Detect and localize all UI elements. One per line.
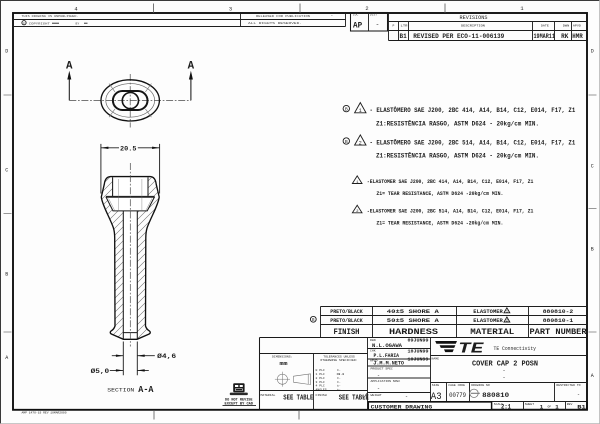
svg-text:COPYRIGHT: COPYRIGHT bbox=[29, 21, 50, 25]
svg-text:- ELASTÔMERO SAE J200, 2BC 514: - ELASTÔMERO SAE J200, 2BC 514, A14, B14… bbox=[370, 139, 576, 146]
svg-text:A: A bbox=[5, 355, 8, 361]
svg-text:A3: A3 bbox=[431, 391, 442, 403]
svg-text:DWN: DWN bbox=[370, 338, 376, 342]
svg-text:TE: TE bbox=[458, 341, 484, 357]
svg-text:1: 1 bbox=[506, 310, 508, 314]
svg-text:OTHERWISE SPECIFIED:: OTHERWISE SPECIFIED: bbox=[320, 358, 357, 362]
svg-text:-ELASTOMER SAE J200, 2BC 414,: -ELASTOMER SAE J200, 2BC 414, A14, B14, … bbox=[367, 179, 534, 185]
svg-text:HARDNESS: HARDNESS bbox=[389, 328, 438, 337]
svg-text:C: C bbox=[591, 164, 594, 170]
svg-text:DIST: DIST bbox=[370, 13, 378, 17]
svg-text:A: A bbox=[66, 60, 73, 72]
svg-text:1: 1 bbox=[359, 108, 362, 114]
svg-text:Z1= TEAR RESISTANCE, ASTM D624: Z1= TEAR RESISTANCE, ASTM D624 -20kg/cm … bbox=[376, 191, 503, 197]
svg-text:B: B bbox=[5, 272, 8, 278]
svg-text:B1: B1 bbox=[577, 404, 586, 411]
svg-text:*: * bbox=[331, 14, 333, 18]
svg-text:REVISED PER ECO-11-006139: REVISED PER ECO-11-006139 bbox=[413, 33, 504, 40]
svg-text:FINISH: FINISH bbox=[334, 328, 360, 337]
svg-text:B: B bbox=[591, 247, 594, 253]
svg-text:N.L.OGAWA: N.L.OGAWA bbox=[372, 343, 403, 349]
svg-text:P: P bbox=[392, 23, 394, 27]
svg-text:PRETO/BLACK: PRETO/BLACK bbox=[330, 318, 363, 324]
svg-text:RELEASED FOR PUBLICATION: RELEASED FOR PUBLICATION bbox=[256, 14, 310, 18]
svg-text:P.L.FARIA: P.L.FARIA bbox=[374, 353, 400, 359]
svg-text:REVISIONS: REVISIONS bbox=[460, 15, 488, 21]
svg-text:BY: BY bbox=[76, 21, 80, 25]
svg-text:-: - bbox=[377, 386, 380, 392]
svg-text:AMP 1470-19 REV 10MAR2000: AMP 1470-19 REV 10MAR2000 bbox=[22, 411, 67, 414]
svg-text:1: 1 bbox=[555, 404, 559, 411]
svg-text:00779: 00779 bbox=[449, 392, 466, 400]
svg-text:THIS DRAWING IS UNPUBLISHED.: THIS DRAWING IS UNPUBLISHED. bbox=[22, 14, 79, 18]
svg-text:A: A bbox=[188, 60, 195, 72]
svg-text:PRETO/BLACK: PRETO/BLACK bbox=[330, 309, 363, 315]
svg-text:FINISH: FINISH bbox=[316, 393, 327, 397]
svg-text:19MAR11: 19MAR11 bbox=[533, 33, 555, 40]
svg-text:SEE TABLE: SEE TABLE bbox=[283, 395, 314, 403]
svg-text:OF: OF bbox=[548, 405, 552, 409]
svg-text:A-A: A-A bbox=[138, 384, 154, 395]
svg-text:- ELASTÔMERO SAE J200, 2BC 414: - ELASTÔMERO SAE J200, 2BC 414, A14, B14… bbox=[370, 107, 576, 114]
svg-text:APVD: APVD bbox=[573, 23, 581, 27]
svg-text:CUSTOMER DRAWING: CUSTOMER DRAWING bbox=[371, 404, 433, 410]
svg-text:TE Connectivity: TE Connectivity bbox=[494, 346, 537, 352]
svg-text:MATERIAL: MATERIAL bbox=[470, 328, 514, 337]
svg-text:B1: B1 bbox=[399, 33, 407, 40]
svg-text:Z1:RESISTÊNCIA RASGO, ASTM D62: Z1:RESISTÊNCIA RASGO, ASTM D624 - 20kg/c… bbox=[376, 120, 539, 127]
svg-text:-: - bbox=[376, 21, 380, 28]
svg-text:1: 1 bbox=[540, 404, 544, 411]
svg-text:09JUN99: 09JUN99 bbox=[408, 338, 429, 344]
svg-text:2: 2 bbox=[506, 320, 508, 324]
svg-text:±-: ±- bbox=[337, 388, 341, 392]
svg-text:LTR: LTR bbox=[401, 23, 408, 27]
svg-text:DATE: DATE bbox=[541, 23, 549, 27]
svg-text:880810-1: 880810-1 bbox=[543, 318, 574, 324]
svg-text:1: 1 bbox=[520, 6, 523, 12]
svg-text:J.M.M.NETO: J.M.M.NETO bbox=[373, 360, 404, 366]
svg-text:2: 2 bbox=[365, 6, 368, 12]
svg-text:Ø5,0: Ø5,0 bbox=[91, 367, 110, 375]
svg-text:880810-2: 880810-2 bbox=[543, 309, 574, 315]
svg-text:20.5: 20.5 bbox=[120, 145, 137, 153]
svg-text:AP: AP bbox=[353, 20, 362, 30]
svg-text:A: A bbox=[591, 373, 594, 379]
svg-text:MATERIAL: MATERIAL bbox=[261, 393, 276, 397]
svg-text:2: 2 bbox=[359, 140, 362, 146]
svg-text:3: 3 bbox=[229, 7, 232, 13]
svg-text:-: - bbox=[405, 394, 408, 400]
svg-text:LOC: LOC bbox=[353, 13, 359, 17]
svg-text:SHEET: SHEET bbox=[525, 402, 534, 406]
svg-text:DWN: DWN bbox=[563, 23, 570, 27]
svg-text:ELASTOMER: ELASTOMER bbox=[473, 309, 503, 315]
svg-text:B: B bbox=[345, 107, 348, 113]
svg-text:ELASTOMER: ELASTOMER bbox=[473, 318, 503, 324]
svg-text:SECTION: SECTION bbox=[107, 387, 135, 394]
svg-text:PART NUMBER: PART NUMBER bbox=[530, 328, 587, 337]
svg-text:C: C bbox=[5, 168, 8, 174]
svg-text:10JUN99: 10JUN99 bbox=[408, 356, 429, 362]
svg-text:WEIGHT: WEIGHT bbox=[371, 393, 382, 397]
svg-text:REV: REV bbox=[567, 402, 573, 406]
svg-text:B: B bbox=[345, 139, 348, 145]
svg-text:D: D bbox=[591, 49, 594, 55]
svg-text:DRAWING NO: DRAWING NO bbox=[471, 383, 490, 387]
svg-text:D: D bbox=[5, 49, 8, 55]
svg-text:ANGLES: ANGLES bbox=[316, 388, 327, 392]
svg-text:ALL RIGHTS RESERVED.: ALL RIGHTS RESERVED. bbox=[248, 21, 302, 25]
svg-text:10JUN99: 10JUN99 bbox=[408, 348, 429, 354]
svg-text:40±5 SHORE A: 40±5 SHORE A bbox=[387, 309, 439, 315]
svg-text:-: - bbox=[377, 372, 380, 378]
svg-text:Z1:RESISTÊNCIA RASGO, ASTM D62: Z1:RESISTÊNCIA RASGO, ASTM D624 - 20kg/c… bbox=[376, 153, 539, 160]
svg-text:50±5 SHORE A: 50±5 SHORE A bbox=[387, 318, 439, 324]
svg-text:-: - bbox=[502, 374, 505, 381]
svg-text:Z1= TEAR RESISTANCE, ASTM D624: Z1= TEAR RESISTANCE, ASTM D624 -20kg/cm … bbox=[376, 220, 503, 226]
svg-text:-: - bbox=[502, 367, 505, 374]
svg-text:4: 4 bbox=[74, 7, 77, 13]
svg-text:CAGE CODE: CAGE CODE bbox=[448, 383, 465, 387]
svg-text:PRODUCT SPEC: PRODUCT SPEC bbox=[371, 366, 393, 370]
svg-text:SIZE: SIZE bbox=[432, 383, 440, 387]
svg-text:2:1: 2:1 bbox=[501, 404, 511, 411]
svg-text:SEE TABLE: SEE TABLE bbox=[339, 395, 370, 403]
svg-text:Ø4,6: Ø4,6 bbox=[157, 352, 176, 360]
svg-text:NAME: NAME bbox=[432, 356, 440, 360]
svg-text:880810: 880810 bbox=[482, 392, 509, 400]
svg-text:DESCRIPTION: DESCRIPTION bbox=[461, 23, 485, 27]
svg-text:RESTRICTED TO: RESTRICTED TO bbox=[556, 383, 580, 387]
svg-text:APPLICATION SPEC: APPLICATION SPEC bbox=[371, 379, 401, 383]
svg-text:HMR: HMR bbox=[572, 33, 583, 40]
svg-text:-: - bbox=[577, 392, 580, 398]
svg-text:DIMENSIONS:: DIMENSIONS: bbox=[272, 354, 293, 358]
svg-text:-ELASTOMER SAE J200, 2BC 514,: -ELASTOMER SAE J200, 2BC 514, A14, B14, … bbox=[367, 208, 534, 214]
svg-text:RK: RK bbox=[561, 33, 569, 40]
svg-text:mm: mm bbox=[280, 360, 289, 367]
